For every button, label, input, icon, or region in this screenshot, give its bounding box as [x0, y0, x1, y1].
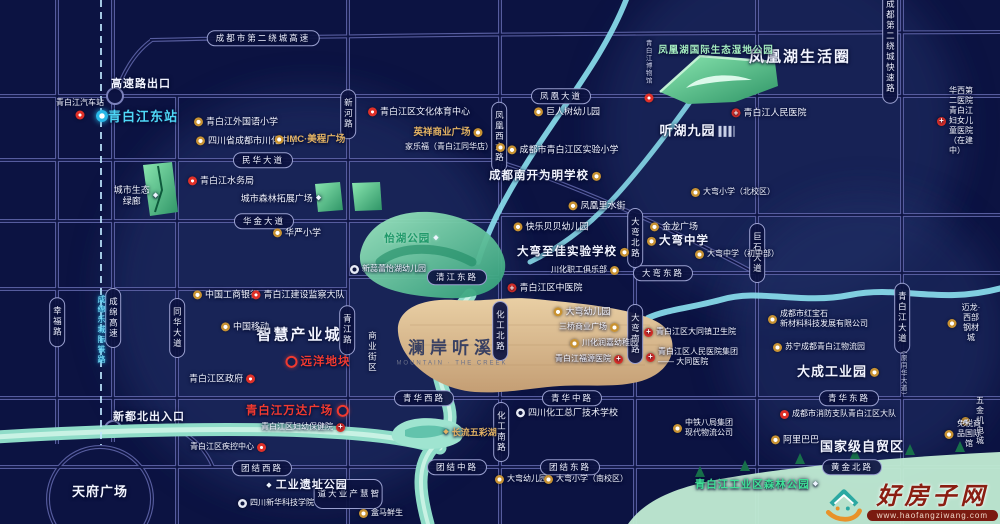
label-text: 化工北路 — [495, 310, 506, 352]
label-text: 青白江区文化体育中心 — [380, 106, 470, 117]
gold-icon — [570, 339, 579, 348]
label-text: 新蕊蕾怡湖幼儿园 — [362, 264, 426, 274]
poi-dawan-kindergarten-south: 大弯幼儿园 — [495, 474, 547, 484]
label-text: 华西第二医院 青白江妇女儿童医院 （在建中） — [949, 86, 979, 156]
gold-icon — [194, 118, 203, 127]
dia-icon: ◆ — [266, 482, 272, 491]
gold-icon — [771, 436, 780, 445]
label-text: 新河路 — [343, 98, 354, 130]
label-text: 青华西路 — [403, 393, 445, 404]
label-text: 成绵乐城际铁路 — [96, 295, 106, 365]
label-text: 凤凰里水街 — [580, 200, 625, 211]
road-chengmian-expressway: 成绵高速 — [105, 288, 121, 348]
label-text: 青白江东站 — [108, 109, 178, 125]
label-text: 远洋地块 — [301, 355, 351, 369]
bank-icbc: 中国工商银行 — [193, 289, 259, 300]
metro-icon — [96, 110, 108, 122]
label-text: 同华大道 — [172, 307, 183, 349]
poi-carrefour: 家乐福（青白江同华店） — [405, 142, 505, 152]
gold-icon — [650, 223, 659, 232]
label-text: 青白江建设监察大队 — [263, 289, 344, 300]
museum-qingbaijiang: 青白江博物馆 — [643, 40, 651, 85]
label-text: 成都市青白江区实验小学 — [519, 144, 618, 155]
red-icon — [368, 108, 377, 117]
label-business-block: 商业街区 — [367, 331, 378, 373]
label-text: 阿里巴巴 — [783, 434, 819, 445]
road-dawan-south: 大弯南路 — [627, 304, 643, 364]
hospital-huaxi-second: 华西第二医院 青白江妇女儿童医院 （在建中） — [937, 86, 979, 156]
gold-icon — [568, 202, 577, 211]
label-text: 华金大道 — [243, 216, 285, 227]
road-huangjin-north: 黄金北路 — [822, 459, 882, 475]
poi-xinruilei-kindergarten: 新蕊蕾怡湖幼儿园 — [350, 264, 426, 274]
label-text: IMC·美程广场 — [287, 134, 346, 146]
label-text: 川化润嘉幼稚园 — [582, 338, 638, 348]
gold-icon — [592, 172, 601, 181]
label-text: 青华东路 — [828, 393, 870, 404]
red-icon — [76, 111, 85, 120]
school-dawan-primary-south: 大弯小学（南校区） — [544, 474, 628, 484]
poi-mailong-steel-city: 迈龙·西部钢材城 — [948, 303, 983, 343]
label-text: 迈龙·西部钢材城 — [960, 303, 983, 343]
hospital-fuyuan: 青白江福源医院 — [555, 354, 623, 364]
label-text: 青白江万达广场 — [246, 404, 334, 418]
label-text: 成都第二绕城快速路 — [885, 0, 896, 94]
gold-icon — [359, 509, 368, 518]
label-text: MOUNTAIN · THE CREEK — [396, 360, 507, 368]
watermark-url: www.haofangziwang.com — [867, 510, 998, 521]
label-text: 凤凰西六路 — [494, 111, 505, 164]
college-sichuan-xinhua: 四川新华科技学院 — [238, 498, 314, 508]
diag-icon: ◆ — [443, 429, 448, 438]
ringred-icon — [336, 405, 348, 417]
label-text: 黄金北路 — [831, 462, 873, 473]
map-labels-layer: 成都市第二绕城高速凤凰大道民华大道华金大道清江东路大弯东路青华西路青华中路青华东… — [0, 0, 1000, 524]
poi-china-mobile: 中国移动 — [221, 321, 269, 332]
label-text: 团结西路 — [241, 463, 283, 474]
label-text: 中国移动 — [233, 321, 269, 332]
dia-icon: ◆ — [316, 195, 321, 204]
poi-duty-free-hall: 免税商品国际馆 — [945, 419, 982, 449]
label-text: 家乐福（青白江同华店） — [405, 142, 493, 152]
label-text: 大弯小学（北校区） — [703, 187, 775, 197]
school-nankai-weiming: 成都南开为明学校 — [489, 169, 601, 183]
redx-icon — [336, 423, 345, 432]
park-industrial-heritage: ◆工业遗址公园 — [266, 479, 347, 493]
school-dawan-zhijia: 大弯至佳实验学校 — [517, 245, 629, 259]
label-text: 快乐贝贝幼儿园 — [525, 221, 588, 232]
label-text: 成都南开为明学校 — [489, 169, 589, 183]
label-text: 金龙广场 — [662, 221, 698, 232]
bus-station-icon — [76, 111, 85, 120]
road-fenghuang-avenue: 凤凰大道 — [531, 88, 591, 104]
location-map: 成都市第二绕城高速凤凰大道民华大道华金大道清江东路大弯东路青华西路青华中路青华东… — [0, 0, 1000, 524]
label-text: 成都市红宝石 新材料科技发展有限公司 — [780, 309, 868, 329]
label-text: 中铁八局集团 现代物流公司 — [685, 418, 733, 438]
gold-icon — [647, 237, 656, 246]
label-text: 英祥商业广场 — [413, 127, 470, 139]
watermark-site-name: 好房子网 — [876, 485, 988, 509]
gold-icon — [610, 323, 619, 332]
red-icon — [246, 375, 255, 384]
label-text: 川化职工俱乐部 — [551, 265, 607, 275]
redx-icon — [731, 109, 740, 118]
gold-icon — [507, 146, 516, 155]
area-dacheng-industrial-park: 大成工业园 — [797, 364, 879, 380]
road-qinghua-east: 青华东路 — [819, 390, 879, 406]
hospital-datong-town: 青白江区大同镇卫生院 — [644, 327, 736, 337]
poi-culture-sports-center: 青白江区文化体育中心 — [368, 106, 470, 117]
label-text: 青白江人民医院 — [743, 107, 806, 118]
gold-icon — [273, 229, 282, 238]
poi-cdc-center: 青白江区疾控中心 — [190, 442, 266, 452]
label-text: 长流五彩湖 — [452, 427, 497, 438]
watermark-house-icon — [822, 477, 863, 524]
label-text: 青白江外国语小学 — [206, 116, 278, 127]
label-text: 大弯至佳实验学校 — [517, 245, 617, 259]
label-text: 青白江水务局 — [200, 175, 254, 186]
park-yihu: 怡湖公园◆ — [384, 232, 439, 245]
company-crec8-logistics: 中铁八局集团 现代物流公司 — [673, 418, 733, 438]
road-dawan-north: 大弯北路 — [627, 208, 643, 268]
poi-xindu-north-exit: 新都北出入口 — [113, 411, 185, 425]
label-text: 大成工业园 — [797, 364, 867, 380]
gold-icon — [544, 475, 553, 484]
label-text: 大弯幼儿园 — [507, 474, 547, 484]
label-text: 城市生态 绿廊 — [114, 185, 150, 208]
label-text: 四川新华科技学院 — [250, 498, 314, 508]
poi-sanqiao-plaza: 三桥商业广场 — [559, 322, 619, 332]
road-qingbaijiang-avenue-note: （原同华大道） — [898, 347, 906, 400]
red-icon — [251, 291, 260, 300]
label-text: 四川化工总厂技术学校 — [528, 407, 618, 418]
ringred-icon — [286, 356, 298, 368]
gold-icon — [496, 143, 505, 152]
label-text: 工业遗址公园 — [276, 479, 348, 493]
hospital-peoples: 青白江人民医院 — [731, 107, 806, 118]
poi-chuanhua-runjia-kindergarten: 川化润嘉幼稚园 — [570, 338, 638, 348]
school-dawan-middle-junior: 大弯中学（初中部） — [695, 249, 779, 259]
project-tinghu-jiuyuan: 听湖九园 — [659, 123, 734, 139]
gold-icon — [193, 291, 202, 300]
gov-water-bureau: 青白江水务局 — [188, 175, 254, 186]
school-dawan-middle: 大弯中学 — [647, 234, 709, 248]
label-text: 高速路出口 — [111, 78, 171, 92]
label-text: 巨人树幼儿园 — [546, 106, 600, 117]
label-text: 团结东路 — [549, 462, 591, 473]
label-text: 华严小学 — [285, 227, 321, 238]
hospital-maternal-child: 青白江区妇幼保健院 — [261, 422, 345, 432]
gold-icon — [773, 343, 782, 352]
poi-hema-fresh: 盒马鲜生 — [359, 508, 403, 518]
park-eco-corridor: 城市生态 绿廊◆ — [114, 185, 158, 208]
rail-intercity-line: 成绵乐城际铁路 — [96, 295, 106, 365]
road-tuanjie-middle: 团结中路 — [427, 459, 487, 475]
school-chemical-plant-tech: 四川化工总厂技术学校 — [516, 407, 618, 418]
gov-district-government: 青白江区政府 — [189, 373, 255, 384]
red-icon — [257, 443, 266, 452]
label-text: 新都北出入口 — [113, 411, 185, 425]
gold-icon — [768, 315, 777, 324]
redx-icon — [937, 117, 946, 126]
metro-station-icon — [96, 110, 108, 122]
label-text: 青华中路 — [551, 393, 593, 404]
label-text: 成都市消防支队青白江区大队 — [792, 409, 896, 419]
label-text: 团结中路 — [436, 462, 478, 473]
gold-icon — [870, 368, 879, 377]
gold-icon — [691, 188, 700, 197]
redx-icon — [614, 355, 623, 364]
white-icon — [516, 409, 525, 418]
station-qingbaijiang-east: 青白江东站 — [108, 109, 178, 125]
gold-icon — [948, 319, 957, 328]
watermark: 好房子网 www.haofangziwang.com — [822, 477, 998, 524]
gold-icon — [695, 250, 704, 259]
gold-icon — [513, 223, 522, 232]
gold-icon — [610, 266, 619, 275]
label-text: 大弯中学 — [659, 234, 709, 248]
label-text: 盒马鲜生 — [371, 508, 403, 518]
label-text: 青江路 — [342, 314, 353, 346]
label-text: 凤凰大道 — [540, 91, 582, 102]
road-qingjiang-east: 清江东路 — [427, 269, 487, 285]
label-text: 幸福路 — [52, 306, 63, 338]
label-text: 大弯北路 — [630, 217, 641, 259]
dia-icon: ◆ — [433, 235, 439, 244]
red-icon — [645, 94, 654, 103]
label-text: 大弯南路 — [630, 313, 641, 355]
gold-icon — [673, 424, 682, 433]
gold-icon — [534, 108, 543, 117]
area-free-trade-zone: 国家级自贸区 — [820, 439, 904, 455]
gold-icon — [275, 136, 284, 145]
hospital-tcm: 青白江区中医院 — [507, 282, 582, 293]
poi-alibaba: 阿里巴巴 — [771, 434, 819, 445]
label-text: 免税商品国际馆 — [957, 419, 982, 449]
label-text: 成都市第二绕城高速 — [216, 33, 311, 44]
road-xingfu: 幸福路 — [49, 297, 65, 347]
label-text: 青白江区疾控中心 — [190, 442, 254, 452]
poi-imc-meicheng-plaza: IMC·美程广场 — [275, 134, 346, 146]
hospital-datong: 青白江区人民医院集团 —— 大同医院 — [646, 347, 738, 367]
label-text: 化工南路 — [496, 411, 507, 453]
project-subtitle: MOUNTAIN · THE CREEK — [396, 360, 507, 368]
poi-yingxiang-plaza: 英祥商业广场 — [413, 127, 482, 139]
road-tuanjie-west: 团结西路 — [232, 460, 292, 476]
poi-dawan-kindergarten: 大弯幼儿园 — [553, 306, 610, 317]
label-text: 青白江工业区森林公园 — [695, 478, 810, 491]
park-urban-forest-plaza: 城市森林拓展广场◆ — [241, 193, 321, 204]
red-icon — [780, 410, 789, 419]
label-text: 苏宁成都青白江物流园 — [785, 342, 865, 352]
school-huayan-primary: 华严小学 — [273, 227, 321, 238]
gold-icon — [196, 137, 205, 146]
label-text: 三桥商业广场 — [559, 322, 607, 332]
redx-icon — [646, 353, 655, 362]
road-second-ring-fastway: 成都第二绕城快速路 — [882, 0, 898, 103]
label-text: 大弯东路 — [642, 268, 684, 279]
road-qingjiang: 青江路 — [339, 305, 355, 355]
road-qinghua-middle: 青华中路 — [542, 390, 602, 406]
gold-icon — [945, 430, 954, 439]
road-xinhe: 新河路 — [340, 89, 356, 139]
poi-chuanhua-staff-club: 川化职工俱乐部 — [551, 265, 619, 275]
road-tonghua-avenue: 同华大道 — [169, 298, 185, 358]
poi-expressway-exit: 高速路出口 — [111, 78, 171, 92]
label-text: 城市森林拓展广场 — [241, 193, 313, 204]
white-icon — [238, 499, 247, 508]
poi-fenghuangli-water-street: 凤凰里水街 — [568, 200, 625, 211]
label-text: 大弯小学（南校区） — [556, 474, 628, 484]
area-smart-industry-city: 智慧产业城 — [256, 327, 341, 346]
poi-jinlong-plaza: 金龙广场 — [650, 221, 698, 232]
poi-happy-baby-kindergarten: 快乐贝贝幼儿园 — [513, 221, 588, 232]
label-text: 清江东路 — [436, 272, 478, 283]
park-industrial-zone-forest: 青白江工业区森林公园◆ — [695, 478, 819, 491]
poi-suning-logistics-park: 苏宁成都青白江物流园 — [773, 342, 865, 352]
label-text: 青白江福源医院 — [555, 354, 611, 364]
gold-icon — [553, 308, 562, 317]
school-dawan-primary-north: 大弯小学（北校区） — [691, 187, 775, 197]
label-text: 成绵高速 — [108, 297, 119, 339]
road-dawan-east: 大弯东路 — [633, 265, 693, 281]
label-text: 国家级自贸区 — [820, 439, 904, 455]
label-text: 听湖九园 — [659, 123, 715, 139]
label-text: 青白江区大同镇卫生院 — [656, 327, 736, 337]
poi-wanda-plaza: 青白江万达广场 — [246, 404, 349, 418]
gold-icon — [474, 129, 483, 138]
poi-bus-station: 青白江汽车站 — [56, 98, 104, 108]
dia-icon: ◆ — [153, 192, 158, 201]
white-icon — [350, 265, 359, 274]
road-fenghuang-west-6th: 凤凰西六路 — [491, 102, 507, 173]
label-text: 大弯中学（初中部） — [707, 249, 779, 259]
project-title: 澜岸听溪 — [408, 337, 496, 358]
label-text: 凤凰湖国际生态湿地公园 — [658, 45, 774, 57]
poi-fire-brigade: 成都市消防支队青白江区大队 — [780, 409, 896, 419]
museum-icon — [645, 94, 654, 103]
poi-construction-supervision: 青白江建设监察大队 — [251, 289, 344, 300]
company-ruby-new-materials: 成都市红宝石 新材料科技发展有限公司 — [768, 309, 868, 329]
label-text: 青白江博物馆 — [643, 40, 651, 85]
road-tuanjie-east: 团结东路 — [540, 459, 600, 475]
road-qingbaijiang-avenue: 青白江大道 — [894, 283, 910, 354]
plaza-tianfu: 天府广场 — [72, 484, 128, 500]
label-text: 青白江区政府 — [189, 373, 243, 384]
road-qinghua-west: 青华西路 — [394, 390, 454, 406]
gold-icon — [221, 323, 230, 332]
bld-icon — [719, 126, 735, 137]
label-text: 智慧产业城 — [256, 327, 341, 346]
road-minhua-avenue: 民华大道 — [233, 152, 293, 168]
redx-icon — [507, 284, 516, 293]
label-text: 青白江区中医院 — [519, 282, 582, 293]
label-text: 青白江区妇幼保健院 — [261, 422, 333, 432]
gold-icon — [495, 475, 504, 484]
poi-giant-tree-kindergarten: 巨人树幼儿园 — [534, 106, 600, 117]
label-text: 大弯幼儿园 — [565, 306, 610, 317]
label-text: 澜岸听溪 — [408, 337, 496, 358]
red-icon — [188, 177, 197, 186]
label-text: 青白江区人民医院集团 —— 大同医院 — [658, 347, 738, 367]
label-text: 天府广场 — [72, 484, 128, 500]
label-text: 怡湖公园 — [384, 232, 430, 245]
redx-icon — [644, 328, 653, 337]
label-text: 青白江大道 — [897, 292, 908, 345]
dia-icon: ◆ — [813, 481, 819, 490]
poi-yuanyang-plot: 远洋地块 — [286, 355, 351, 369]
park-phoenix-lake-wetland: 凤凰湖国际生态湿地公园 — [658, 45, 774, 57]
label-text: （原同华大道） — [898, 347, 906, 400]
gold-icon — [620, 248, 629, 257]
label-text: 青白江汽车站 — [56, 98, 104, 108]
label-text: 商业街区 — [367, 331, 378, 373]
road-second-ring-expressway: 成都市第二绕城高速 — [207, 30, 320, 46]
school-experimental-primary: 成都市青白江区实验小学 — [507, 144, 618, 155]
school-foreign-language-primary: 青白江外国语小学 — [194, 116, 278, 127]
label-text: 民华大道 — [242, 155, 284, 166]
poi-changliu-five-color-lake: ◆长流五彩湖 — [443, 427, 496, 438]
